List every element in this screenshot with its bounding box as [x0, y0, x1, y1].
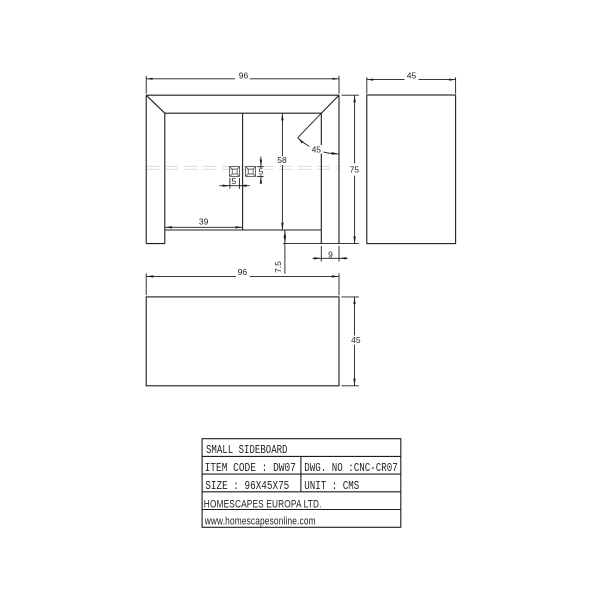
svg-text:45: 45 [312, 144, 322, 154]
svg-text:5: 5 [232, 176, 237, 186]
svg-text:UNIT : CMS: UNIT : CMS [304, 480, 359, 493]
svg-text:5: 5 [259, 167, 264, 177]
svg-text:7.5: 7.5 [273, 261, 283, 273]
svg-text:75: 75 [350, 165, 360, 175]
svg-text:39: 39 [199, 217, 209, 227]
svg-text:45: 45 [407, 70, 417, 80]
svg-text:www.homescapesonline.com: www.homescapesonline.com [204, 516, 316, 528]
svg-text:58: 58 [277, 155, 287, 165]
svg-text:96: 96 [238, 267, 248, 277]
svg-text:96: 96 [239, 70, 249, 80]
svg-text:45: 45 [351, 335, 361, 345]
svg-text:ITEM CODE : DW07: ITEM CODE : DW07 [205, 462, 296, 475]
svg-text:DWG. NO :CNC-CR07: DWG. NO :CNC-CR07 [304, 462, 398, 475]
svg-text:9: 9 [328, 249, 333, 259]
svg-text:SMALL SIDEBOARD: SMALL SIDEBOARD [206, 444, 288, 457]
svg-text:HOMESCAPES EUROPA LTD.: HOMESCAPES EUROPA LTD. [204, 498, 322, 510]
svg-text:SIZE : 96X45X75: SIZE : 96X45X75 [205, 480, 289, 493]
